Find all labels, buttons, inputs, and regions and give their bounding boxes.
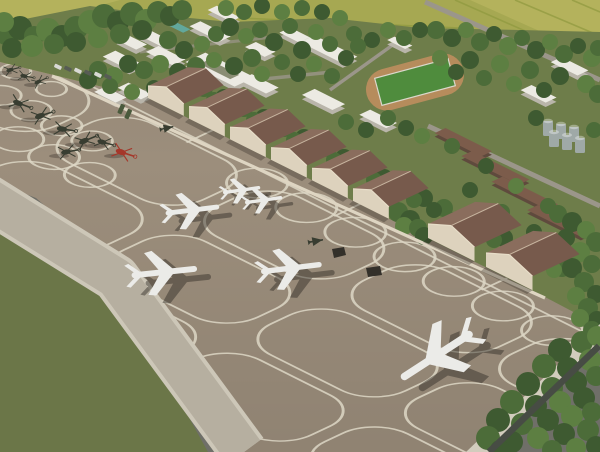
airbase-aerial-render — [0, 0, 600, 452]
